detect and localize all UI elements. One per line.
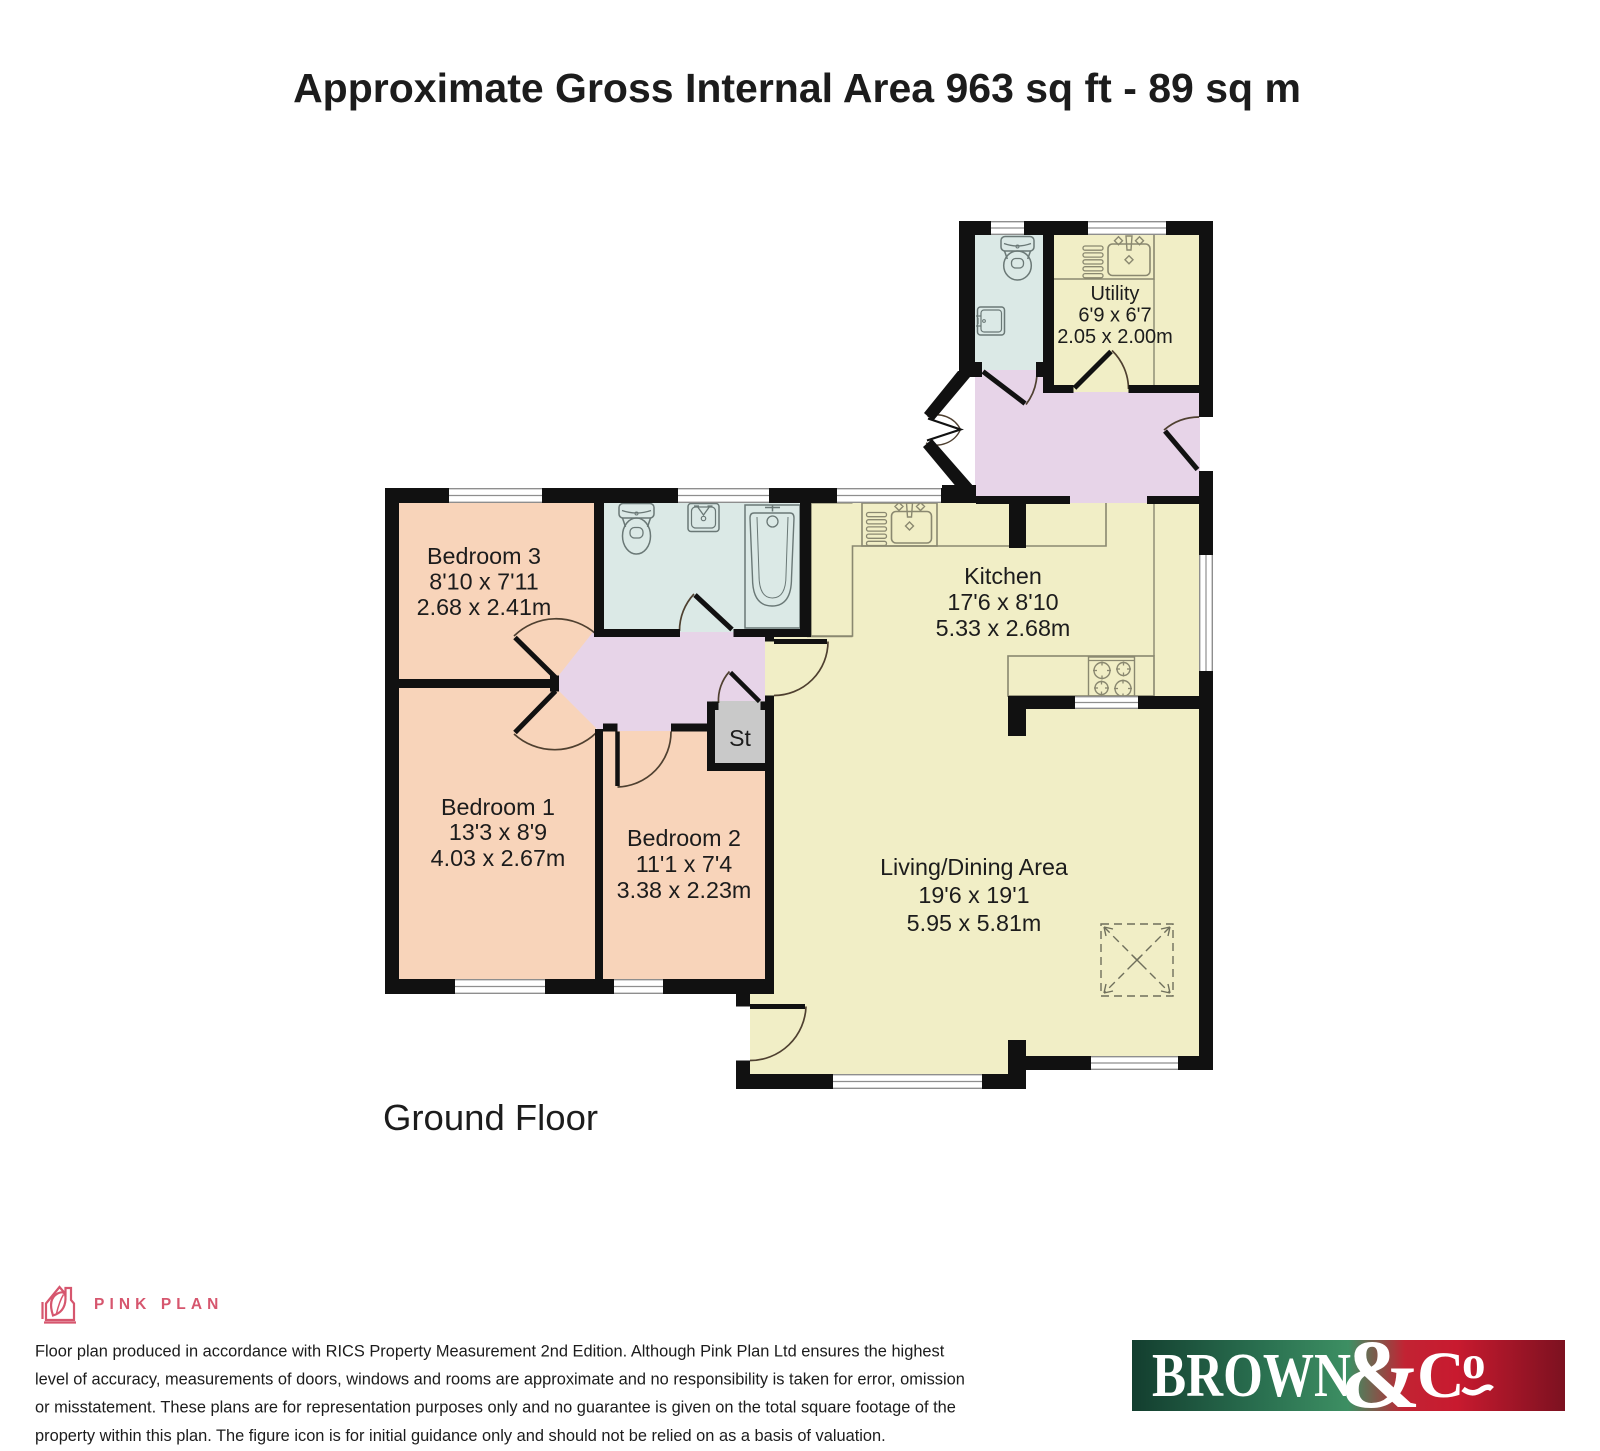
svg-text:5.95 x 5.81m: 5.95 x 5.81m [907,910,1042,936]
svg-text:BROWN: BROWN [1152,1342,1351,1410]
svg-text:4.03 x 2.67m: 4.03 x 2.67m [431,845,566,871]
svg-text:o: o [1462,1337,1486,1389]
svg-text:8'10 x 7'11: 8'10 x 7'11 [429,569,539,595]
svg-text:6'9 x 6'7: 6'9 x 6'7 [1078,305,1151,327]
svg-text:2.05 x 2.00m: 2.05 x 2.00m [1057,326,1173,348]
svg-text:Living/Dining Area: Living/Dining Area [880,854,1068,880]
svg-text:Bedroom 3: Bedroom 3 [427,543,541,569]
svg-text:&: & [1340,1321,1421,1428]
svg-text:Bedroom 2: Bedroom 2 [627,825,741,851]
svg-text:13'3 x 8'9: 13'3 x 8'9 [449,819,547,845]
svg-text:3.38 x 2.23m: 3.38 x 2.23m [617,877,752,903]
svg-text:Kitchen: Kitchen [964,563,1042,589]
svg-text:PINK PLAN: PINK PLAN [94,1296,223,1313]
svg-text:Approximate Gross Internal Are: Approximate Gross Internal Area 963 sq f… [293,65,1301,111]
svg-text:Utility: Utility [1091,283,1140,305]
svg-text:5.33 x 2.68m: 5.33 x 2.68m [936,615,1071,641]
svg-text:Ground Floor: Ground Floor [383,1097,598,1138]
svg-text:11'1 x 7'4: 11'1 x 7'4 [636,851,733,877]
svg-text:Bedroom 1: Bedroom 1 [441,794,555,820]
svg-text:17'6 x 8'10: 17'6 x 8'10 [947,589,1058,615]
svg-text:St: St [729,725,751,751]
svg-text:or misstatement. These plans a: or misstatement. These plans are for rep… [35,1399,956,1417]
svg-text:level of accuracy, measurement: level of accuracy, measurements of doors… [35,1371,965,1389]
svg-text:19'6 x 19'1: 19'6 x 19'1 [918,882,1029,908]
svg-text:Floor plan produced in accorda: Floor plan produced in accordance with R… [35,1343,945,1361]
svg-text:C: C [1417,1339,1465,1412]
svg-text:property within this plan. The: property within this plan. The figure ic… [35,1427,886,1445]
svg-text:2.68 x 2.41m: 2.68 x 2.41m [417,594,552,620]
